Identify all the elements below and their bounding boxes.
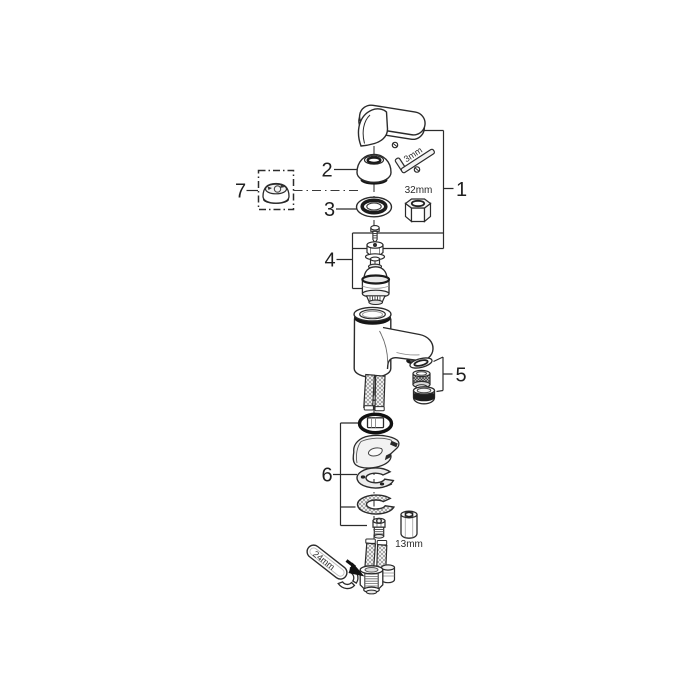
part-5-aerator-housing bbox=[414, 387, 435, 404]
socket-tool-icon: 32mm bbox=[405, 185, 433, 222]
callout-6: 6 bbox=[321, 465, 332, 487]
faucet-exploded-diagram: 3mm 32mm bbox=[0, 0, 700, 700]
set-screw-lower bbox=[414, 167, 419, 172]
part-6-wedge-spacer bbox=[353, 435, 399, 468]
callout-1: 1 bbox=[456, 179, 467, 201]
callout-7: 7 bbox=[235, 181, 246, 203]
hose-fitting-small bbox=[382, 565, 395, 583]
part-7-cap-variant bbox=[263, 184, 289, 204]
part-6-horseshoe-clamp bbox=[358, 495, 394, 514]
part-4-cartridge bbox=[362, 257, 389, 304]
callout-5: 5 bbox=[455, 365, 466, 387]
part-4-screw bbox=[371, 226, 379, 243]
part-5-aerator-insert bbox=[413, 370, 430, 388]
callout-3: 3 bbox=[324, 199, 335, 221]
part-2-dome-cap bbox=[357, 155, 391, 185]
exploded-diagram-canvas: 3mm 32mm bbox=[0, 0, 700, 700]
hex-sleeve-size-label: 13mm bbox=[395, 539, 423, 550]
part-6-threaded-stud bbox=[373, 518, 385, 538]
hex-sleeve-tool-icon: 13mm bbox=[395, 511, 423, 550]
part-6-flange bbox=[360, 414, 392, 432]
set-screw-upper bbox=[392, 142, 397, 147]
part-6-horseshoe-washer bbox=[357, 468, 393, 488]
callout-2: 2 bbox=[321, 160, 332, 182]
part-3-ring bbox=[357, 197, 392, 217]
hose-nut-large bbox=[360, 566, 383, 594]
socket-size-label: 32mm bbox=[405, 185, 433, 196]
part-1-lever-handle bbox=[357, 104, 426, 146]
callout-4: 4 bbox=[324, 250, 335, 272]
